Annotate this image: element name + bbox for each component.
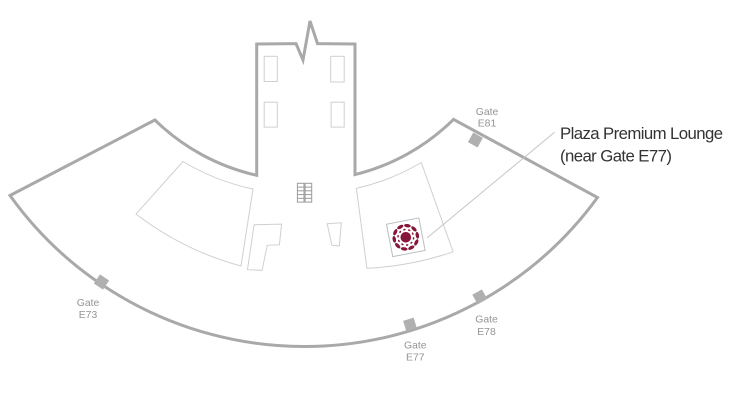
svg-text:Gate: Gate bbox=[475, 315, 498, 326]
svg-text:E78: E78 bbox=[477, 327, 496, 338]
svg-text:E73: E73 bbox=[79, 310, 98, 321]
svg-text:Gate: Gate bbox=[476, 107, 499, 118]
svg-text:Gate: Gate bbox=[77, 298, 100, 309]
svg-text:E81: E81 bbox=[478, 119, 497, 130]
svg-text:(near Gate E77): (near Gate E77) bbox=[560, 147, 671, 166]
svg-text:Plaza Premium Lounge: Plaza Premium Lounge bbox=[560, 124, 723, 143]
svg-text:E77: E77 bbox=[406, 353, 425, 364]
svg-text:Gate: Gate bbox=[404, 341, 427, 352]
